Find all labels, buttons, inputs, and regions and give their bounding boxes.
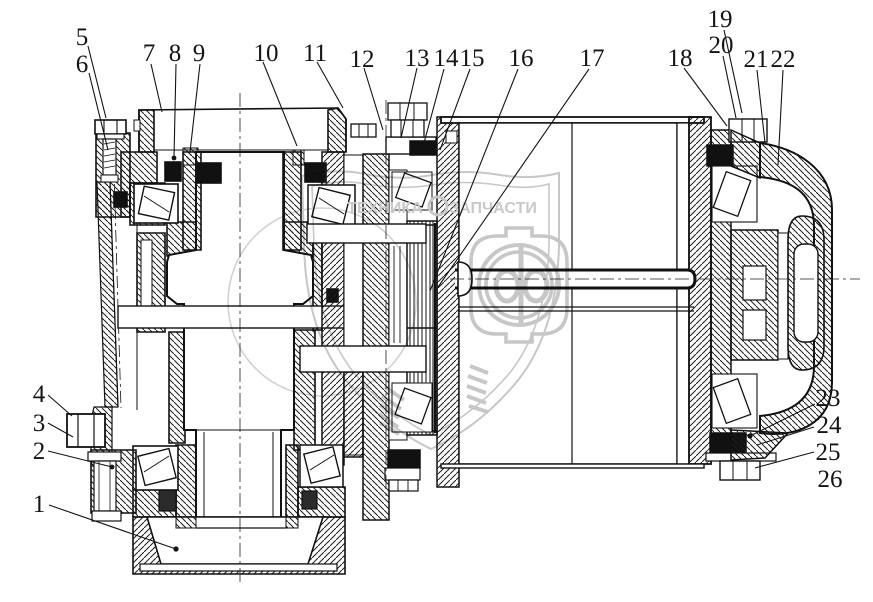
svg-text:17: 17: [580, 45, 605, 72]
svg-text:1: 1: [33, 491, 46, 518]
svg-text:4: 4: [33, 381, 46, 408]
svg-text:ТЕХНИКА: ТЕХНИКА: [347, 200, 423, 217]
svg-text:6: 6: [76, 51, 89, 78]
svg-text:2: 2: [33, 438, 46, 465]
svg-text:25: 25: [816, 439, 841, 466]
svg-text:15: 15: [460, 45, 485, 72]
svg-text:11: 11: [303, 40, 327, 67]
svg-text:10: 10: [254, 40, 279, 67]
svg-text:26: 26: [818, 466, 843, 493]
svg-text:3: 3: [33, 410, 46, 437]
svg-text:22: 22: [771, 46, 796, 73]
svg-text:16: 16: [509, 45, 534, 72]
svg-text:24: 24: [817, 412, 843, 439]
svg-text:12: 12: [350, 46, 375, 73]
svg-text:5: 5: [76, 24, 89, 51]
svg-text:21: 21: [744, 46, 769, 73]
svg-text:20: 20: [709, 32, 734, 59]
svg-text:13: 13: [405, 45, 430, 72]
svg-text:14: 14: [434, 45, 460, 72]
svg-text:7: 7: [143, 40, 156, 67]
svg-text:9: 9: [193, 40, 206, 67]
svg-text:8: 8: [169, 40, 182, 67]
svg-text:23: 23: [816, 385, 841, 412]
svg-text:18: 18: [668, 45, 693, 72]
svg-text:19: 19: [708, 6, 733, 33]
